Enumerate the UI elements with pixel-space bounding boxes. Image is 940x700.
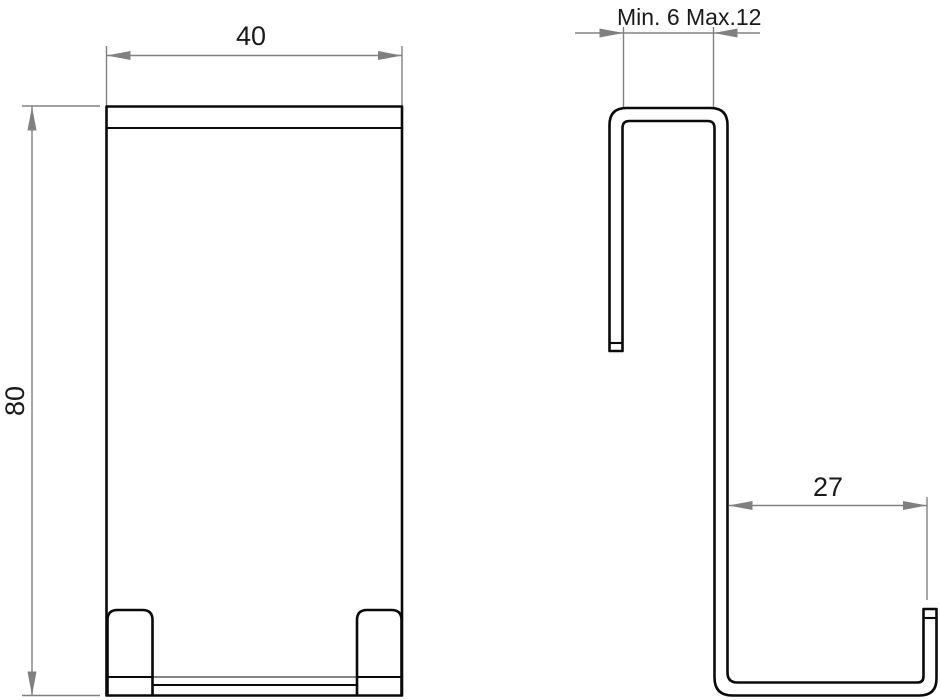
arrowhead-left-icon (729, 501, 753, 510)
door-gap-dimension: Min. 6 Max.12 (575, 4, 761, 117)
arrowhead-up-icon (28, 107, 37, 131)
front-height-label: 80 (0, 386, 30, 416)
front-height-dimension: 80 (0, 106, 100, 696)
technical-drawing-canvas: 40 80 (0, 0, 940, 700)
depth-dimension: 27 (729, 472, 928, 600)
arrowhead-right-icon (903, 501, 927, 510)
depth-label: 27 (813, 472, 843, 502)
arrowhead-left-icon (107, 51, 131, 60)
door-gap-label: Min. 6 Max.12 (617, 4, 761, 30)
front-width-label: 40 (236, 21, 266, 51)
door-hook-technical-drawing: 40 80 (0, 0, 940, 700)
arrowhead-right-icon (378, 51, 402, 60)
side-view: Min. 6 Max.12 27 (575, 4, 937, 696)
hook-profile-outline (610, 108, 937, 696)
front-width-dimension: 40 (107, 21, 403, 106)
front-body-outline (107, 107, 403, 696)
front-view: 40 80 (0, 21, 402, 696)
arrowhead-down-icon (28, 672, 37, 696)
